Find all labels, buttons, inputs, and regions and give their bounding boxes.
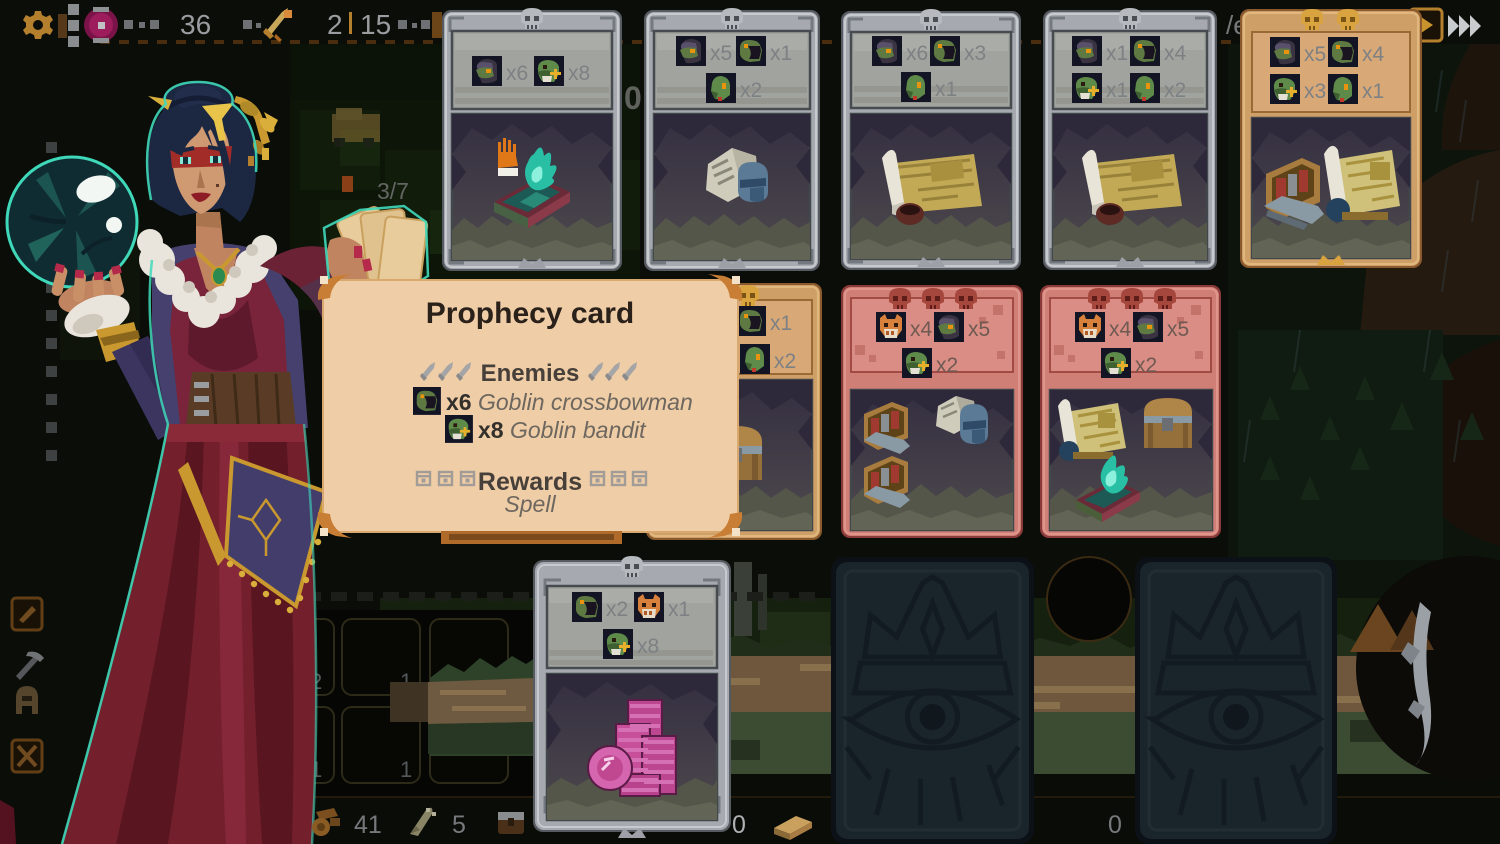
svg-text:x2: x2 [936, 354, 958, 377]
svg-text:x2: x2 [606, 598, 628, 621]
svg-text:x2: x2 [774, 350, 796, 373]
svg-text:x5: x5 [1304, 43, 1326, 66]
svg-text:15: 15 [360, 9, 391, 40]
svg-text:Spell: Spell [504, 491, 556, 517]
svg-text:2: 2 [327, 9, 343, 40]
svg-text:x1: x1 [770, 42, 792, 65]
svg-text:x3: x3 [1304, 80, 1326, 103]
svg-text:3/7: 3/7 [377, 178, 409, 204]
svg-text:Enemies: Enemies [481, 360, 580, 387]
svg-text:x6: x6 [446, 389, 472, 415]
svg-text:36: 36 [180, 9, 211, 40]
svg-text:Goblin bandit: Goblin bandit [510, 417, 647, 443]
svg-text:x1: x1 [935, 78, 957, 101]
svg-text:x2: x2 [1164, 79, 1186, 102]
svg-text:0: 0 [732, 811, 746, 839]
svg-text:x8: x8 [568, 62, 590, 85]
svg-text:x5: x5 [1167, 318, 1189, 341]
svg-text:x5: x5 [968, 318, 990, 341]
svg-text:0: 0 [624, 80, 642, 116]
svg-text:x6: x6 [506, 62, 528, 85]
svg-text:x4: x4 [1362, 43, 1385, 66]
svg-text:x1: x1 [1362, 80, 1384, 103]
svg-text:Goblin crossbowman: Goblin crossbowman [478, 389, 693, 415]
svg-text:x1: x1 [1106, 79, 1128, 102]
svg-text:x2: x2 [1135, 354, 1157, 377]
svg-text:1: 1 [400, 757, 412, 782]
svg-text:x1: x1 [668, 598, 690, 621]
svg-text:0: 0 [1108, 811, 1122, 839]
svg-text:x6: x6 [906, 42, 928, 65]
svg-text:x4: x4 [1164, 42, 1187, 65]
svg-text:x3: x3 [964, 42, 986, 65]
svg-text:5: 5 [452, 811, 466, 839]
svg-text:x4: x4 [1109, 318, 1132, 341]
svg-text:Prophecy card: Prophecy card [426, 297, 634, 330]
svg-text:x8: x8 [478, 417, 504, 443]
svg-text:x1: x1 [1106, 42, 1128, 65]
svg-text:x1: x1 [770, 312, 792, 335]
svg-text:x2: x2 [740, 79, 762, 102]
svg-text:x8: x8 [637, 635, 659, 658]
svg-text:x4: x4 [910, 318, 933, 341]
svg-text:41: 41 [354, 811, 382, 839]
svg-text:x5: x5 [710, 42, 732, 65]
